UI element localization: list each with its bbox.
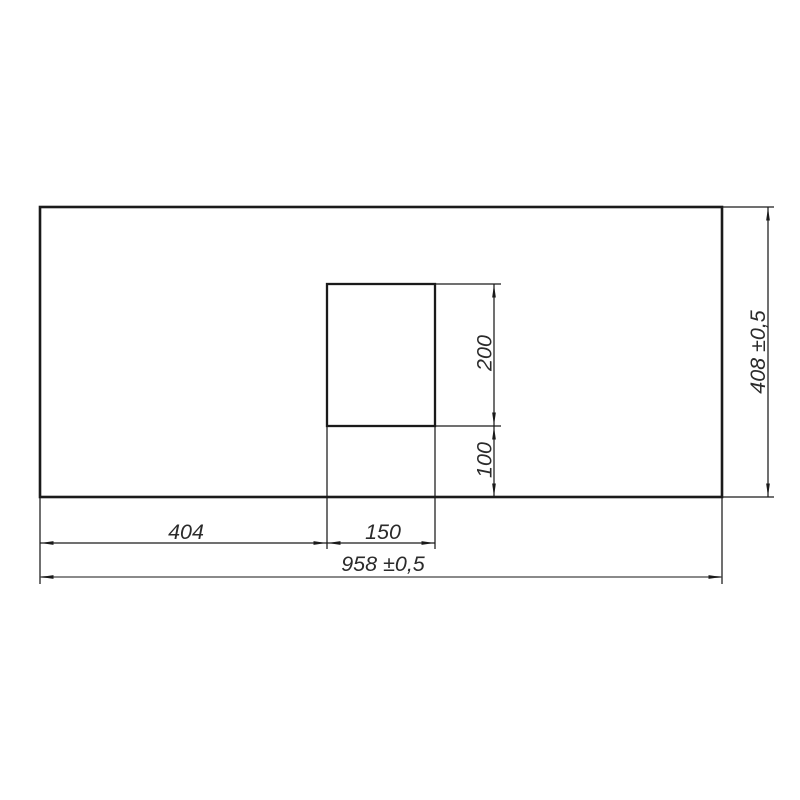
dim-label-cutout-height: 200 xyxy=(473,335,497,372)
dim-label-overall-height: 408 ±0,5 xyxy=(746,309,770,394)
dim-label-cutout-width: 150 xyxy=(365,520,401,544)
dim-label-cutout-offset-left: 404 xyxy=(168,520,204,544)
panel-outline xyxy=(40,207,722,497)
cutout-outline xyxy=(327,284,435,426)
drawing-canvas: 404 150 958 ±0,5 200 100 408 ±0,5 xyxy=(0,0,800,800)
dim-label-overall-width: 958 ±0,5 xyxy=(341,552,426,576)
dim-label-cutout-offset-bottom: 100 xyxy=(473,442,497,478)
dimension-drawing: 404 150 958 ±0,5 200 100 408 ±0,5 xyxy=(0,0,800,800)
